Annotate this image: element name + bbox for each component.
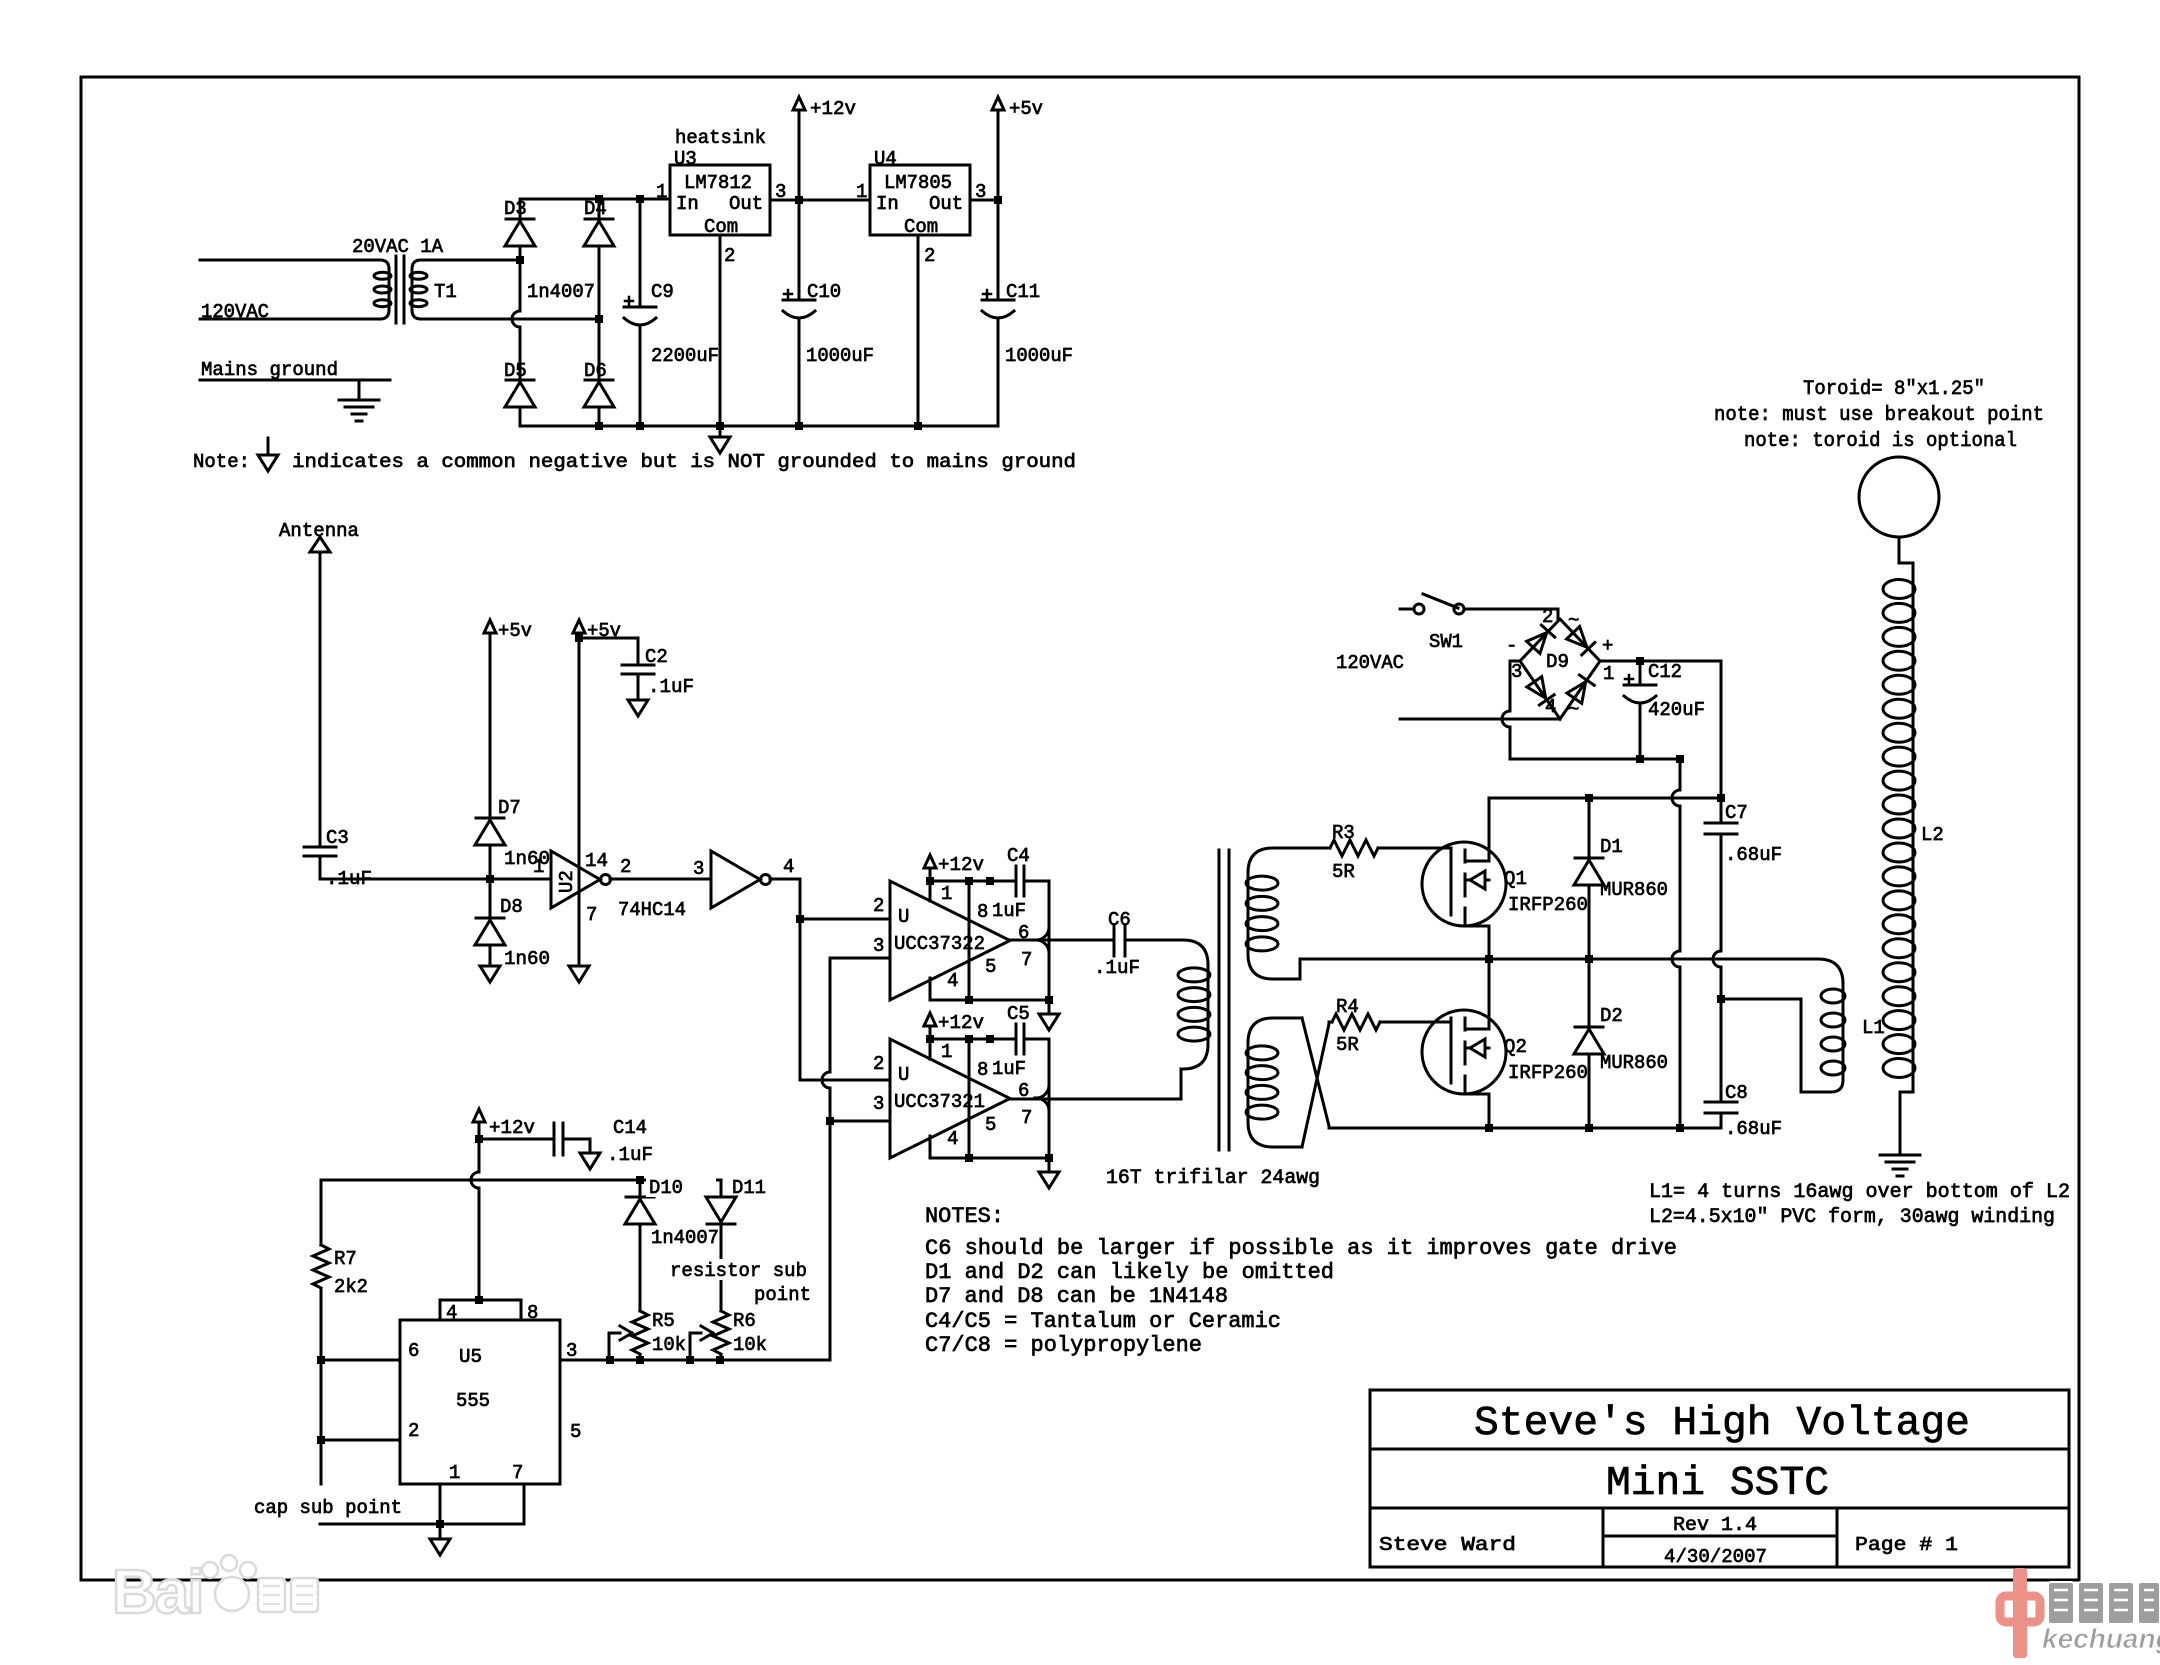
svg-text:LM7805: LM7805: [884, 172, 952, 194]
svg-text:1: 1: [656, 181, 667, 203]
svg-text:~: ~: [1568, 699, 1579, 721]
svg-text:Out: Out: [729, 193, 763, 215]
svg-text:Mains ground: Mains ground: [201, 359, 338, 381]
svg-text:1: 1: [856, 181, 867, 203]
svg-text:+: +: [1602, 635, 1613, 657]
svg-text:Toroid= 8"x1.25": Toroid= 8"x1.25": [1803, 378, 1985, 401]
svg-text:2: 2: [924, 245, 935, 267]
svg-text:120VAC: 120VAC: [1336, 652, 1404, 674]
svg-text:C6: C6: [1108, 909, 1131, 931]
svg-text:D8: D8: [500, 896, 523, 918]
svg-text:UCC37321: UCC37321: [894, 1091, 985, 1113]
svg-text:Rev 1.4: Rev 1.4: [1673, 1514, 1757, 1536]
svg-text:2: 2: [873, 1053, 884, 1075]
svg-text:cap sub point: cap sub point: [254, 1497, 402, 1519]
svg-text:16T trifilar 24awg: 16T trifilar 24awg: [1106, 1167, 1320, 1190]
svg-text:C3: C3: [326, 827, 349, 849]
svg-text:note: must use breakout point: note: must use breakout point: [1714, 404, 2044, 427]
svg-text:C5: C5: [1007, 1003, 1030, 1025]
svg-text:U5: U5: [459, 1346, 482, 1368]
svg-text:L1: L1: [1862, 1017, 1885, 1039]
svg-text:14: 14: [585, 850, 608, 872]
svg-text:1: 1: [1603, 663, 1614, 685]
svg-text:555: 555: [456, 1390, 490, 1412]
svg-text:U3: U3: [674, 148, 697, 170]
svg-text:2: 2: [1542, 606, 1553, 628]
svg-text:+12v: +12v: [938, 1012, 984, 1034]
svg-text:C10: C10: [807, 281, 841, 303]
svg-text:C9: C9: [651, 281, 674, 303]
svg-text:U4: U4: [874, 148, 897, 170]
svg-text:1: 1: [941, 1041, 952, 1063]
svg-text:R7: R7: [334, 1248, 357, 1270]
svg-text:5: 5: [570, 1421, 581, 1443]
svg-text:4: 4: [783, 856, 794, 878]
svg-text:.68uF: .68uF: [1725, 844, 1782, 866]
svg-text:Mini SSTC: Mini SSTC: [1606, 1461, 1829, 1507]
svg-text:4: 4: [446, 1302, 457, 1324]
svg-text:7: 7: [586, 904, 597, 926]
svg-text:2k2: 2k2: [334, 1276, 368, 1298]
svg-text:R6: R6: [733, 1310, 756, 1332]
svg-text:D4: D4: [584, 198, 607, 220]
svg-text:IRFP260: IRFP260: [1508, 894, 1588, 916]
svg-text:2: 2: [724, 245, 735, 267]
svg-text:D1: D1: [1600, 836, 1623, 858]
svg-text:10k: 10k: [652, 1334, 686, 1356]
svg-text:C2: C2: [645, 646, 668, 668]
svg-text:2: 2: [873, 895, 884, 917]
svg-text:In: In: [876, 193, 899, 215]
svg-text:20VAC 1A: 20VAC 1A: [352, 236, 444, 258]
svg-text:1000uF: 1000uF: [806, 345, 874, 367]
svg-text:10k: 10k: [733, 1334, 767, 1356]
svg-text:LM7812: LM7812: [684, 172, 752, 194]
svg-text:8: 8: [527, 1302, 538, 1324]
svg-text:point: point: [754, 1284, 811, 1306]
svg-text:7: 7: [512, 1462, 523, 1484]
svg-text:1n60: 1n60: [504, 948, 550, 970]
svg-text:IRFP260: IRFP260: [1508, 1062, 1588, 1084]
svg-text:U: U: [898, 1064, 909, 1086]
svg-text:120VAC: 120VAC: [201, 301, 269, 323]
svg-text:.1uF: .1uF: [607, 1144, 653, 1166]
svg-text:T1: T1: [434, 281, 457, 303]
svg-text:kechuang.org: kechuang.org: [2042, 1623, 2160, 1654]
svg-text:Page # 1: Page # 1: [1855, 1534, 1958, 1556]
svg-text:2: 2: [620, 856, 631, 878]
svg-text:SW1: SW1: [1429, 631, 1463, 653]
svg-text:U2: U2: [556, 870, 578, 893]
svg-text:-: -: [1506, 635, 1517, 657]
svg-text:UCC37322: UCC37322: [894, 933, 985, 955]
svg-text:C12: C12: [1648, 661, 1682, 683]
svg-text:D2: D2: [1600, 1005, 1623, 1027]
svg-text:D6: D6: [584, 360, 607, 382]
svg-text:heatsink: heatsink: [675, 127, 766, 149]
svg-text:note: toroid is optional: note: toroid is optional: [1744, 430, 2017, 453]
svg-text:74HC14: 74HC14: [618, 899, 686, 921]
svg-text:+5v: +5v: [1009, 98, 1043, 120]
svg-text:resistor sub: resistor sub: [670, 1260, 807, 1282]
svg-text:In: In: [676, 193, 699, 215]
svg-text:5: 5: [985, 956, 996, 978]
svg-text:Q1: Q1: [1504, 868, 1527, 890]
svg-text:C7: C7: [1725, 802, 1748, 824]
svg-text:5R: 5R: [1336, 1034, 1359, 1056]
svg-text:C11: C11: [1006, 281, 1040, 303]
svg-text:D3: D3: [504, 198, 527, 220]
svg-text:C4/C5 = Tantalum or Ceramic: C4/C5 = Tantalum or Ceramic: [925, 1309, 1281, 1334]
svg-text:Bai: Bai: [112, 1558, 202, 1627]
svg-text:C7/C8 = polypropylene: C7/C8 = polypropylene: [925, 1333, 1202, 1358]
svg-text:R4: R4: [1336, 996, 1359, 1018]
svg-text:3: 3: [873, 935, 884, 957]
svg-text:D1 and D2 can likely be omitte: D1 and D2 can likely be omitted: [925, 1260, 1334, 1285]
svg-text:1n4007: 1n4007: [651, 1227, 719, 1249]
svg-text:indicates a common negative bu: indicates a common negative but is NOT g…: [292, 451, 1076, 473]
svg-text:D11: D11: [732, 1177, 766, 1199]
svg-text:C8: C8: [1725, 1082, 1748, 1104]
svg-text:R5: R5: [652, 1310, 675, 1332]
svg-text:+12v: +12v: [489, 1117, 535, 1139]
svg-text:4: 4: [1545, 696, 1556, 718]
svg-text:~: ~: [1568, 610, 1579, 632]
svg-text:U: U: [898, 906, 909, 928]
svg-text:Q2: Q2: [1504, 1036, 1527, 1058]
svg-text:D10: D10: [649, 1177, 683, 1199]
svg-text:420uF: 420uF: [1648, 699, 1705, 721]
svg-text:.1uF: .1uF: [1094, 957, 1140, 979]
svg-text:D7 and D8 can be 1N4148: D7 and D8 can be 1N4148: [925, 1284, 1228, 1309]
svg-text:8: 8: [977, 901, 988, 923]
svg-text:C14: C14: [613, 1117, 647, 1139]
svg-text:L2: L2: [1921, 824, 1944, 846]
svg-text:L2=4.5x10" PVC form, 30awg win: L2=4.5x10" PVC form, 30awg winding: [1649, 1206, 2055, 1229]
svg-text:R3: R3: [1332, 822, 1355, 844]
svg-text:D9: D9: [1546, 651, 1569, 673]
svg-text:Steve Ward: Steve Ward: [1379, 1534, 1516, 1556]
svg-text:+5v: +5v: [498, 620, 532, 642]
svg-text:1uF: 1uF: [992, 1058, 1026, 1080]
svg-text:.1uF: .1uF: [648, 676, 694, 698]
svg-text:Com: Com: [904, 216, 938, 238]
svg-text:.68uF: .68uF: [1725, 1118, 1782, 1140]
svg-text:1uF: 1uF: [992, 900, 1026, 922]
svg-text:+12v: +12v: [810, 98, 856, 120]
svg-text:7: 7: [1021, 1107, 1032, 1129]
svg-text:1: 1: [449, 1462, 460, 1484]
svg-text:4/30/2007: 4/30/2007: [1664, 1546, 1767, 1568]
svg-text:C4: C4: [1007, 845, 1030, 867]
svg-text:7: 7: [1021, 949, 1032, 971]
svg-text:1000uF: 1000uF: [1005, 345, 1073, 367]
svg-text:C6 should be larger if possibl: C6 should be larger if possible as it im…: [925, 1236, 1677, 1261]
svg-text:MUR860: MUR860: [1600, 1052, 1668, 1074]
svg-text:5: 5: [985, 1114, 996, 1136]
svg-text:Steve's High Voltage: Steve's High Voltage: [1474, 1401, 1970, 1447]
svg-text:Note:: Note:: [193, 451, 250, 473]
svg-text:D7: D7: [498, 797, 521, 819]
svg-text:5R: 5R: [1332, 861, 1355, 883]
svg-text:L1= 4 turns 16awg over bottom: L1= 4 turns 16awg over bottom of L2: [1649, 1181, 2070, 1204]
svg-text:+12v: +12v: [938, 854, 984, 876]
svg-text:1: 1: [533, 856, 544, 878]
svg-text:1: 1: [941, 883, 952, 905]
svg-text:6: 6: [408, 1340, 419, 1362]
svg-text:Out: Out: [929, 193, 963, 215]
svg-text:4: 4: [947, 970, 958, 992]
svg-text:D5: D5: [504, 360, 527, 382]
svg-text:1n4007: 1n4007: [527, 281, 595, 303]
svg-text:4: 4: [947, 1128, 958, 1150]
svg-text:3: 3: [873, 1093, 884, 1115]
svg-text:3: 3: [693, 858, 704, 880]
svg-text:2: 2: [408, 1420, 419, 1442]
svg-text:3: 3: [1511, 661, 1522, 683]
svg-text:8: 8: [977, 1059, 988, 1081]
svg-text:MUR860: MUR860: [1600, 879, 1668, 901]
svg-text:NOTES:: NOTES:: [925, 1204, 1004, 1229]
svg-text:2200uF: 2200uF: [651, 345, 719, 367]
